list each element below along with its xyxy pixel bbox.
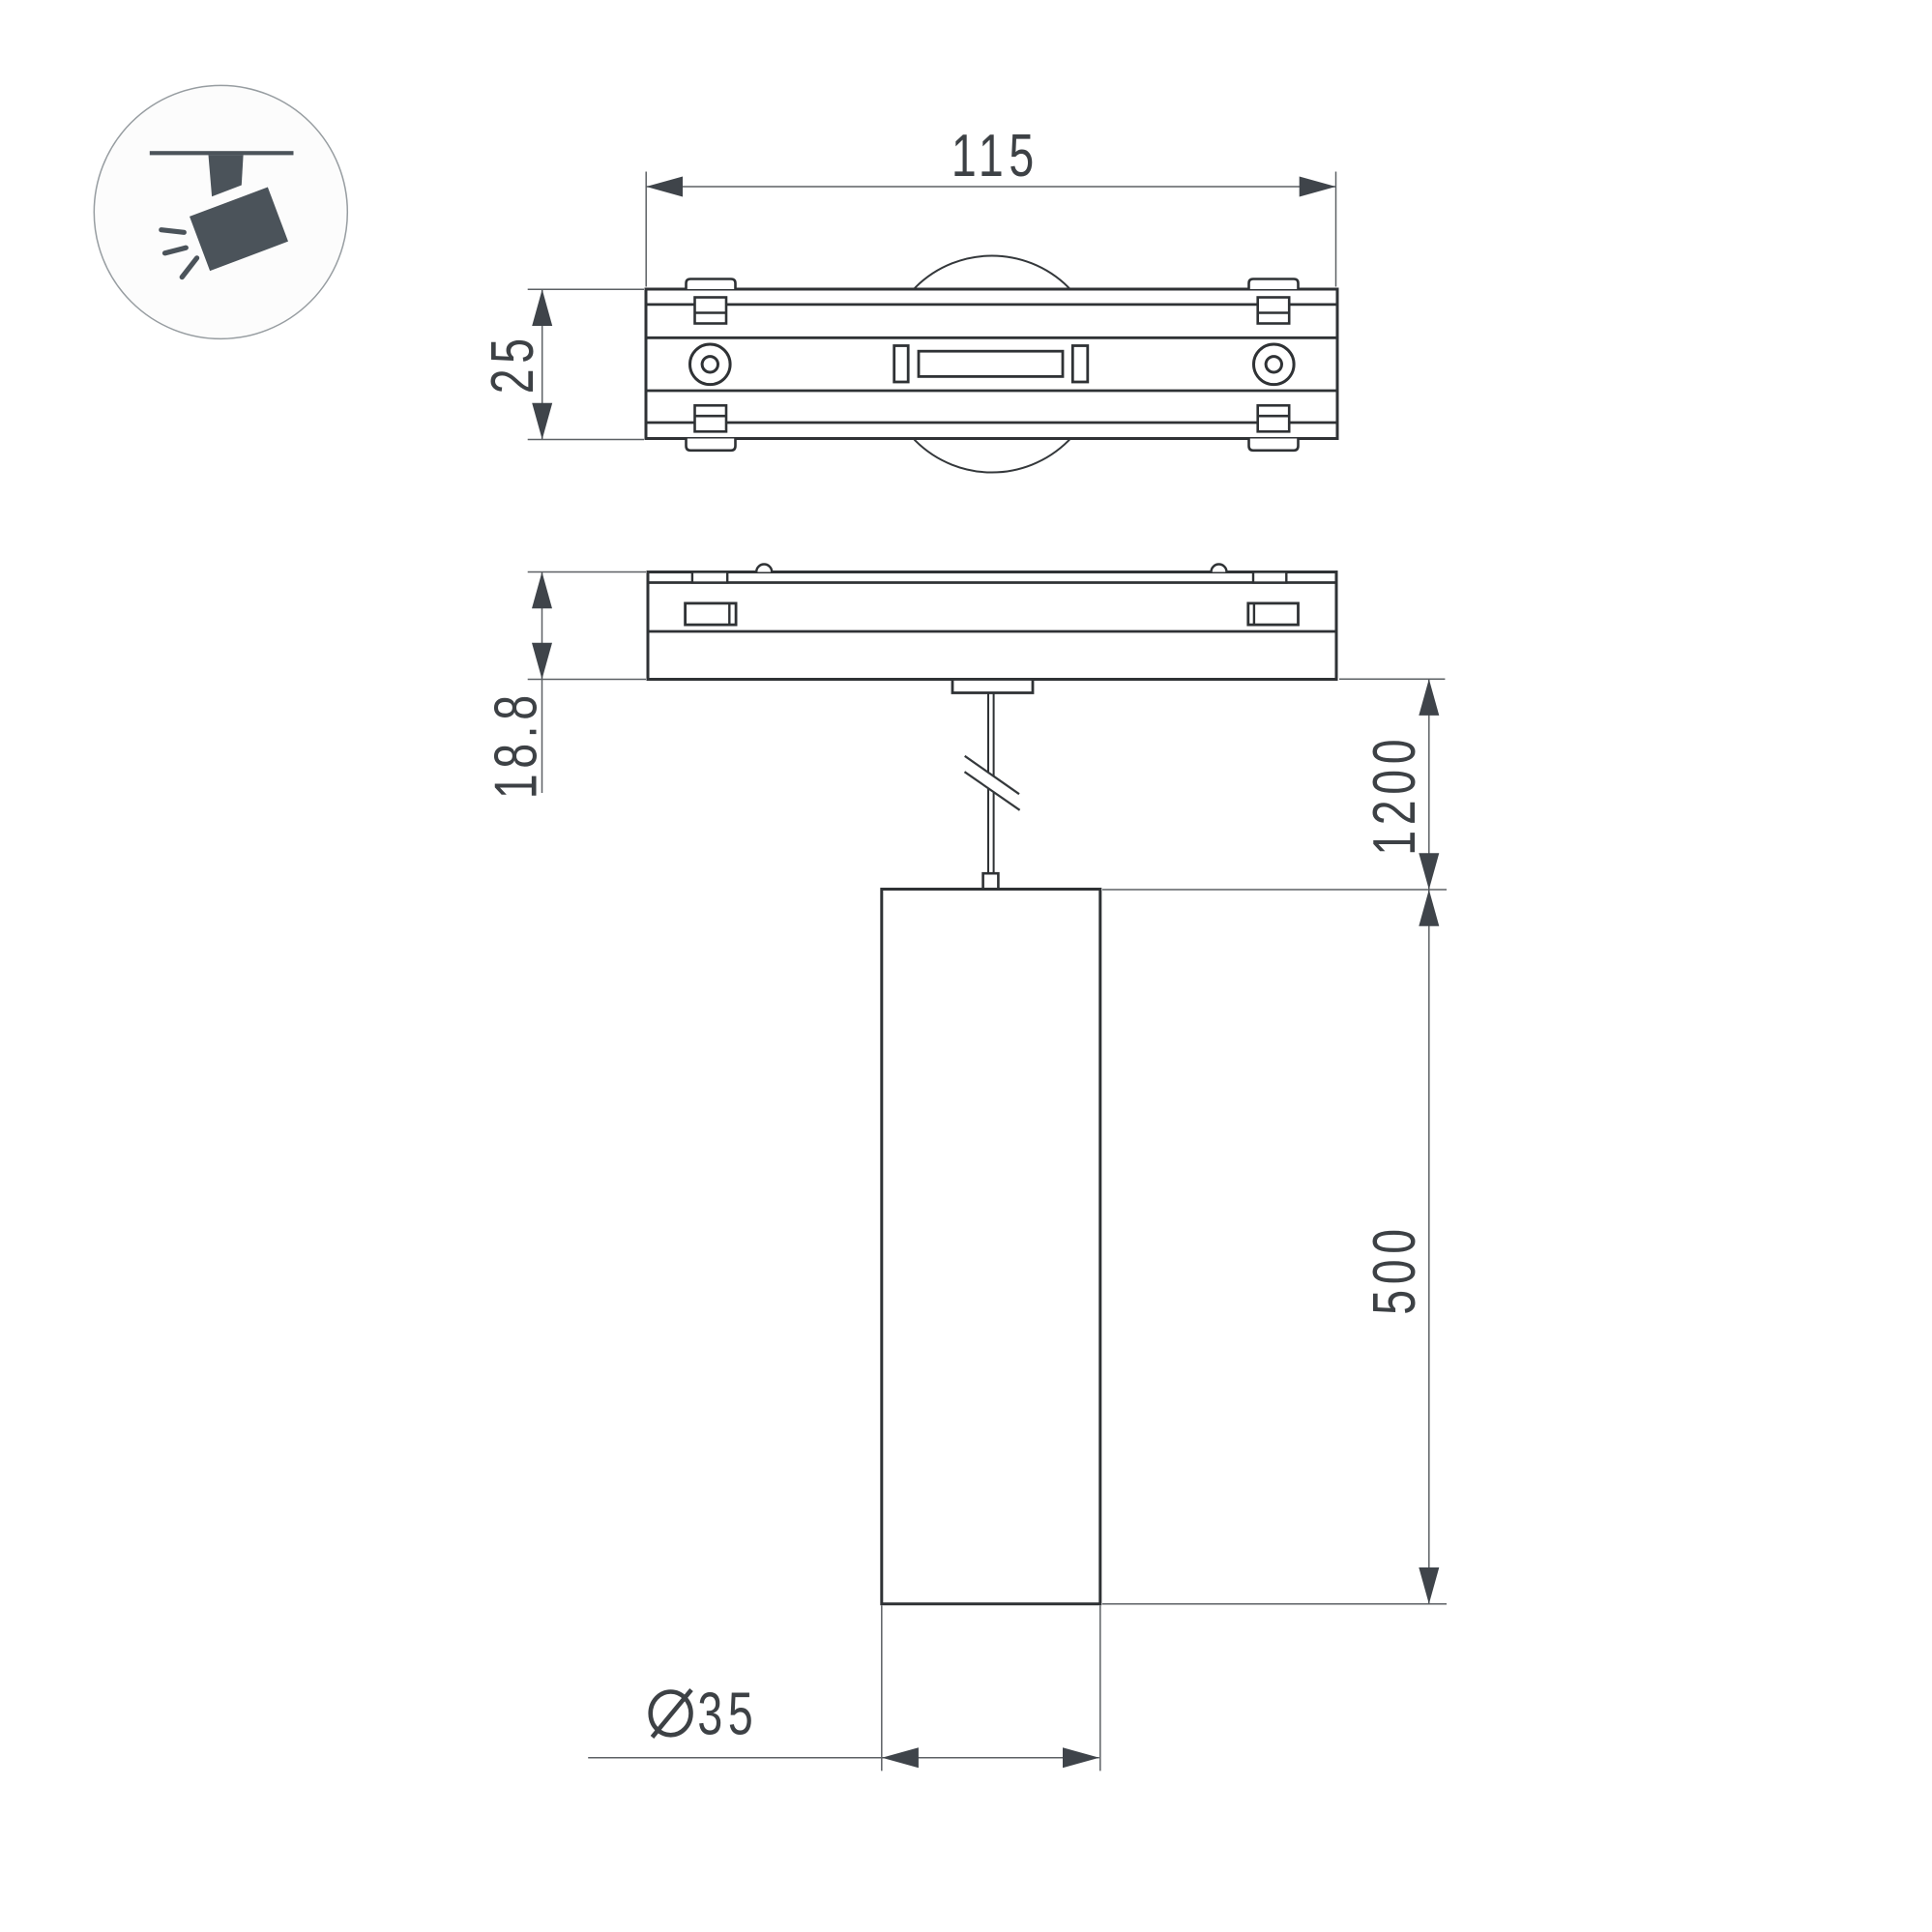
svg-text:35: 35 [697, 1680, 758, 1747]
svg-text:18.8: 18.8 [482, 689, 549, 799]
svg-text:25: 25 [478, 333, 545, 394]
svg-text:500: 500 [1360, 1223, 1427, 1314]
svg-text:1200: 1200 [1360, 734, 1427, 856]
svg-text:115: 115 [951, 121, 1039, 189]
